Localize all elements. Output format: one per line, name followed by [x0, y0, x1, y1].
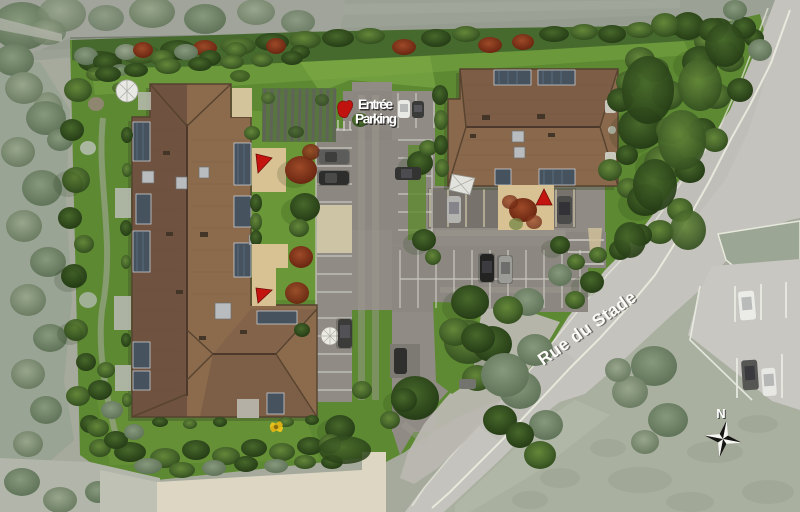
svg-text:N: N — [716, 406, 725, 421]
svg-text:Parking: Parking — [355, 112, 397, 127]
svg-text:Entrée: Entrée — [358, 97, 393, 112]
